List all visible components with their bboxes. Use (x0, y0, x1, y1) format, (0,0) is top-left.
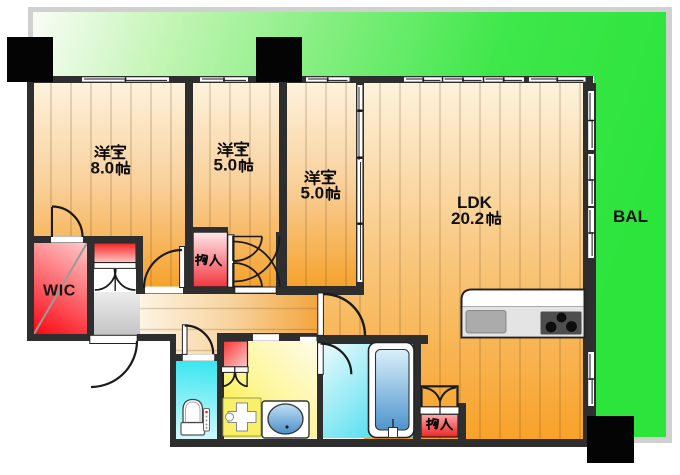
svg-text:20.2: 20.2 (451, 209, 484, 228)
svg-text:5.0: 5.0 (214, 156, 238, 175)
svg-text:5.0: 5.0 (301, 184, 325, 203)
svg-text:8.0: 8.0 (91, 159, 115, 178)
svg-text:BAL: BAL (613, 207, 648, 226)
svg-text:WIC: WIC (43, 283, 76, 300)
